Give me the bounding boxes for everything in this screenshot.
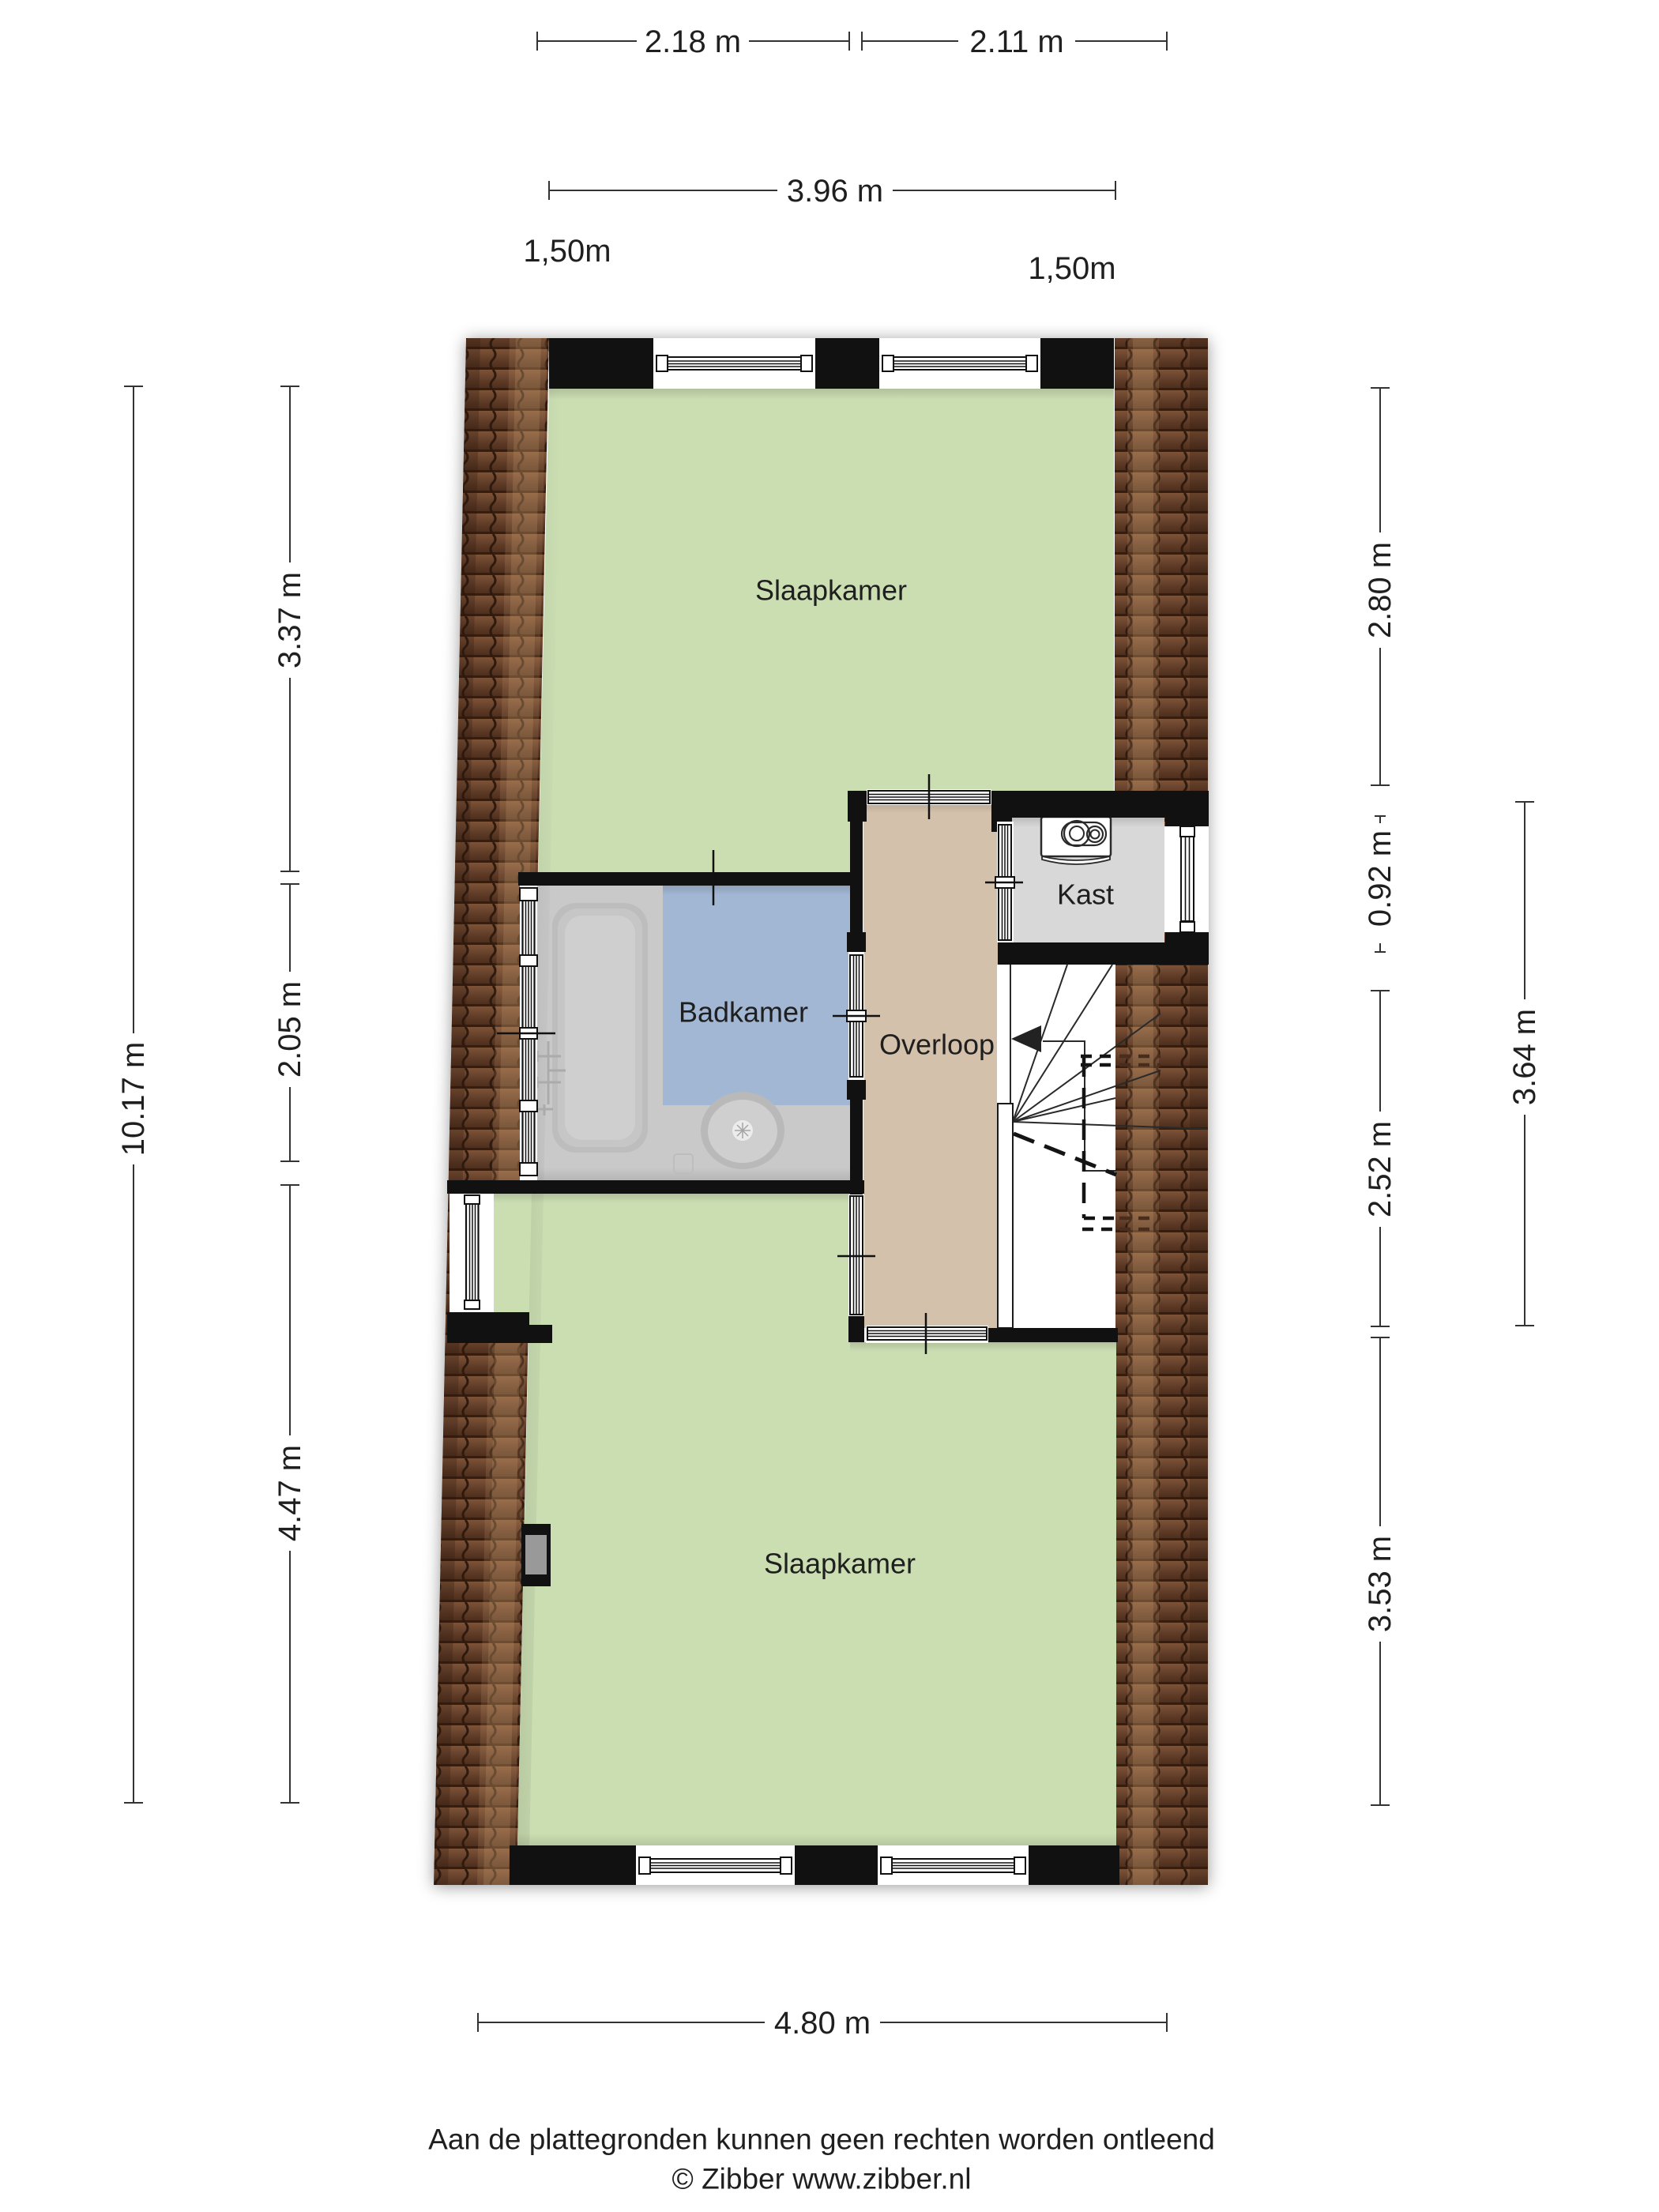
svg-text:2.05 m: 2.05 m [273,981,307,1078]
svg-text:3.37 m: 3.37 m [273,572,307,668]
svg-text:2.80 m: 2.80 m [1363,542,1398,638]
svg-text:3.96 m: 3.96 m [787,174,883,209]
svg-text:0.92 m: 0.92 m [1363,830,1398,927]
svg-text:Overloop: Overloop [879,1029,995,1061]
svg-text:3.64 m: 3.64 m [1507,1009,1542,1105]
svg-text:1,50m: 1,50m [1028,251,1115,286]
svg-text:3.53 m: 3.53 m [1363,1536,1398,1632]
svg-text:Kast: Kast [1057,878,1114,911]
svg-text:4.80 m: 4.80 m [774,2006,871,2041]
svg-text:Badkamer: Badkamer [679,996,808,1029]
svg-text:10.17 m: 10.17 m [116,1042,151,1157]
svg-text:Slaapkamer: Slaapkamer [755,574,907,607]
svg-text:Aan de plattegronden kunnen ge: Aan de plattegronden kunnen geen rechten… [428,2124,1215,2156]
svg-text:© Zibber www.zibber.nl: © Zibber www.zibber.nl [672,2163,972,2195]
svg-text:Slaapkamer: Slaapkamer [764,1548,916,1580]
svg-text:2.52 m: 2.52 m [1363,1121,1398,1217]
svg-text:2.18 m: 2.18 m [645,24,741,59]
svg-text:2.11 m: 2.11 m [969,24,1063,59]
svg-text:1,50m: 1,50m [523,234,611,269]
svg-text:4.47 m: 4.47 m [273,1445,307,1541]
